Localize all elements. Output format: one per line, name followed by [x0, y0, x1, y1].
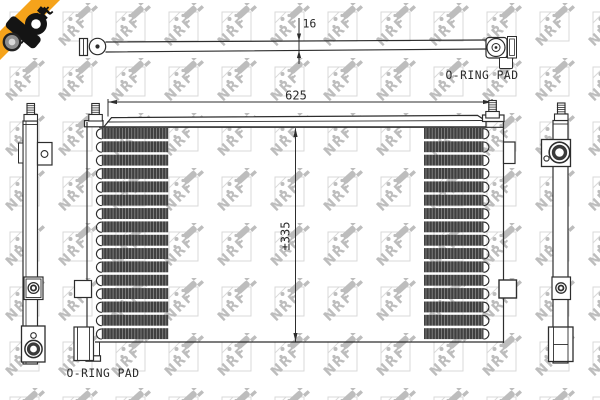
arrow-left-icon	[108, 100, 117, 104]
top-view-right-tab	[500, 58, 513, 69]
small-port	[556, 283, 566, 293]
easyfit-banner-art: easyfit	[0, 0, 94, 94]
right-side-view	[542, 121, 574, 364]
oring-pad-label-top: O-RING PAD	[446, 69, 519, 82]
arrow-down-icon	[297, 34, 301, 42]
bracket-hole	[41, 151, 48, 158]
oring-pad-part	[508, 37, 517, 59]
top-view-right-port-center	[495, 46, 498, 49]
top-view-condenser	[80, 37, 517, 69]
fin-cores	[96, 128, 489, 342]
condenser-drawing-canvas: NRFNRFNRFNRFNRFNRFNRFNRFNRFNRFNRFNRFNRFN…	[0, 0, 600, 400]
fin-serpentine-edge	[484, 129, 489, 339]
fin-serpentine-edge	[96, 129, 101, 339]
mounting-bolt	[486, 101, 500, 119]
small-port	[28, 283, 39, 294]
arrow-up-icon	[293, 128, 297, 137]
side-left-tab	[19, 143, 24, 163]
dimension-width-value: 625	[285, 89, 307, 103]
arrow-up-icon	[297, 51, 301, 59]
mounting-bolt	[89, 104, 103, 122]
right-top-bracket	[504, 142, 516, 164]
dimension-depth-value: 16	[303, 17, 317, 31]
dimension-height-value: ±335	[279, 222, 293, 251]
dimension-depth: 16	[297, 17, 317, 65]
right-mid-bracket	[499, 280, 517, 298]
arrow-down-icon	[293, 333, 297, 342]
top-view-bar	[106, 40, 487, 52]
top-view-left-port-center	[95, 44, 99, 48]
oring-pad-bracket	[74, 327, 94, 361]
dimension-width: 625	[108, 89, 492, 117]
fin-core	[96, 128, 168, 342]
oring-pad-label-bottom: O-RING PAD	[67, 367, 140, 380]
mounting-bolt	[555, 103, 569, 121]
left-side-view	[19, 121, 53, 364]
mounting-bolt	[24, 104, 38, 122]
dimension-height: ±335	[279, 128, 298, 341]
easyfit-banner: easyfit	[0, 0, 94, 94]
left-mid-bracket	[75, 281, 92, 298]
fin-core	[424, 128, 489, 342]
